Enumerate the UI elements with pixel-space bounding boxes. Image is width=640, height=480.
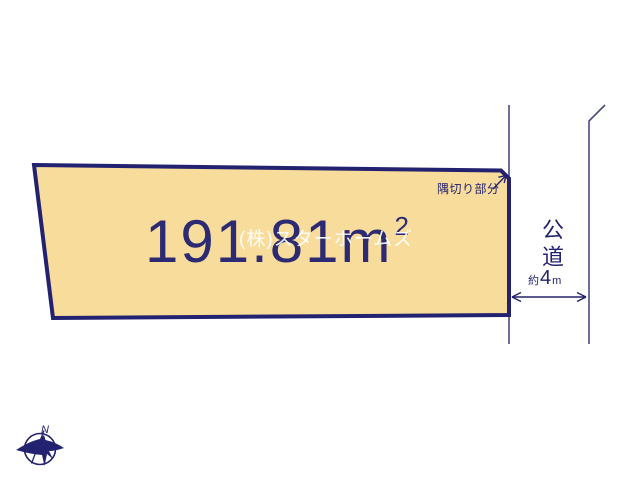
compass: N bbox=[16, 424, 64, 466]
road-width-label: 約 4 m bbox=[528, 268, 561, 288]
road-boundary-line-right bbox=[589, 105, 605, 344]
corner-cut-label: 隅切り部分 bbox=[437, 180, 500, 197]
road-width-unit: m bbox=[552, 276, 561, 287]
company-watermark: (株)スターホームズ bbox=[239, 229, 413, 252]
compass-bird-icon bbox=[16, 435, 64, 466]
road-width-value: 4 bbox=[540, 268, 551, 288]
land-plot-diagram: N 191.81m2 (株)スターホームズ 隅切り部分 公道 約 4 m bbox=[0, 0, 640, 480]
road-width-arrow bbox=[512, 293, 586, 302]
road-width-prefix: 約 bbox=[528, 276, 539, 287]
road-name-label: 公道 bbox=[535, 218, 567, 272]
compass-north-label: N bbox=[41, 424, 49, 436]
